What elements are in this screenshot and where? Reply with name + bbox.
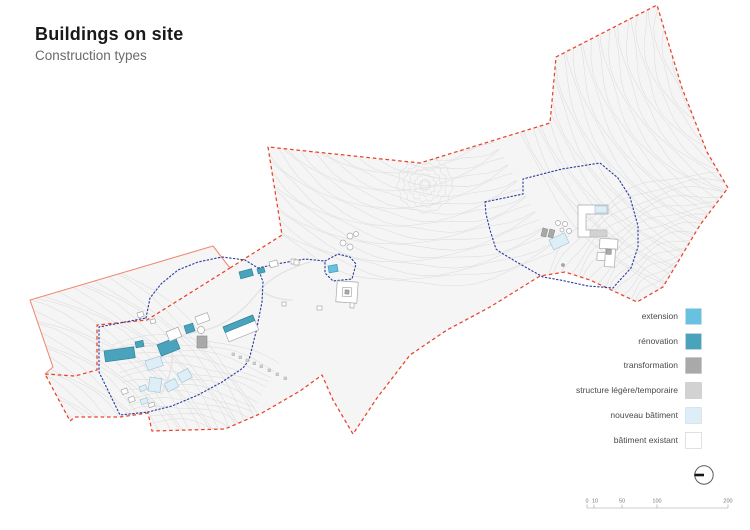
round-structure xyxy=(340,240,346,246)
scale-label-50: 50 xyxy=(619,499,625,505)
round-structure xyxy=(556,221,561,226)
legend-swatch-extension xyxy=(685,308,702,325)
building-structure xyxy=(590,230,607,237)
legend-label: nouveau bâtiment xyxy=(610,410,678,420)
legend-swatch-transformation xyxy=(685,357,702,374)
legend-row-new-building: nouveau bâtiment xyxy=(470,407,710,424)
building-existing xyxy=(317,306,322,310)
legend-label: extension xyxy=(642,311,678,321)
building-renovation xyxy=(135,340,144,348)
scale-label-10: 10 xyxy=(592,499,598,505)
scale-label-100: 100 xyxy=(652,499,661,505)
building-existing xyxy=(282,302,286,306)
scale-label-0: 0 xyxy=(585,499,588,505)
round-structure xyxy=(347,233,353,239)
round-structure xyxy=(347,244,353,250)
scale-bar: 0 10 50 100 200 xyxy=(585,499,732,509)
legend-row-extension: extension xyxy=(470,308,710,325)
page-title: Buildings on site xyxy=(35,24,183,45)
site-plan-page: 0 10 50 100 200 Buildings on site Constr… xyxy=(0,0,750,530)
round-structure xyxy=(567,229,572,234)
legend-row-renovation: rénovation xyxy=(470,333,710,350)
north-indicator xyxy=(694,466,713,484)
page-subtitle: Construction types xyxy=(35,48,183,63)
legend-label: transformation xyxy=(624,360,678,370)
scale-label-200: 200 xyxy=(723,499,732,505)
round-structure xyxy=(354,232,359,237)
legend-row-transformation: transformation xyxy=(470,357,710,374)
round-structure xyxy=(563,222,568,227)
legend-swatch-new-building xyxy=(685,407,702,424)
legend-swatch-structure xyxy=(685,382,702,399)
legend-label: rénovation xyxy=(638,336,678,346)
legend-label: structure légère/temporaire xyxy=(576,385,678,395)
building-new-roof xyxy=(595,206,607,213)
building-existing xyxy=(294,260,299,265)
round-structure xyxy=(560,228,564,232)
building-new xyxy=(148,377,162,393)
building-round-existing xyxy=(198,327,205,334)
legend-swatch-renovation xyxy=(685,333,702,350)
legend-swatch-existing-building xyxy=(685,432,702,449)
building-existing xyxy=(137,311,144,317)
building-extension xyxy=(328,264,338,272)
legend-label: bâtiment existant xyxy=(614,435,678,445)
small-marker xyxy=(562,264,565,267)
site-plan-map: 0 10 50 100 200 xyxy=(0,0,750,530)
legend-row-existing-building: bâtiment existant xyxy=(470,432,710,449)
legend-row-structure: structure légère/temporaire xyxy=(470,382,710,399)
title-block: Buildings on site Construction types xyxy=(35,24,183,63)
building-existing xyxy=(150,319,156,324)
building-transformation xyxy=(197,336,207,348)
